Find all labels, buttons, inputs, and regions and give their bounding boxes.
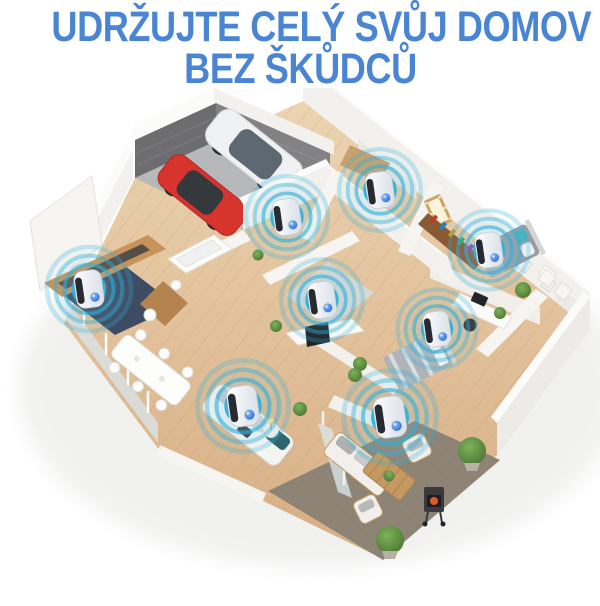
repeller-device-master-bedroom — [447, 208, 532, 293]
repeller-device-study — [395, 287, 480, 372]
headline: UDRŽUJTE CELÝ SVŮJ DOMOV BEZ ŠKŮDCŮ — [0, 6, 600, 90]
repeller-device-family-room — [278, 257, 365, 344]
repeller-device-patio — [340, 368, 439, 467]
repeller-device-dressing-room — [336, 147, 423, 234]
floorplan-illustration — [0, 88, 600, 593]
repeller-device-living-room — [194, 357, 292, 455]
repeller-device-kitchen — [44, 244, 134, 334]
headline-line-2: BEZ ŠKŮDCŮ — [184, 48, 417, 90]
repeller-device-entry-hall — [243, 174, 330, 261]
headline-line-1: UDRŽUJTE CELÝ SVŮJ DOMOV — [51, 6, 591, 48]
marketing-hero: UDRŽUJTE CELÝ SVŮJ DOMOV BEZ ŠKŮDCŮ — [0, 6, 600, 606]
